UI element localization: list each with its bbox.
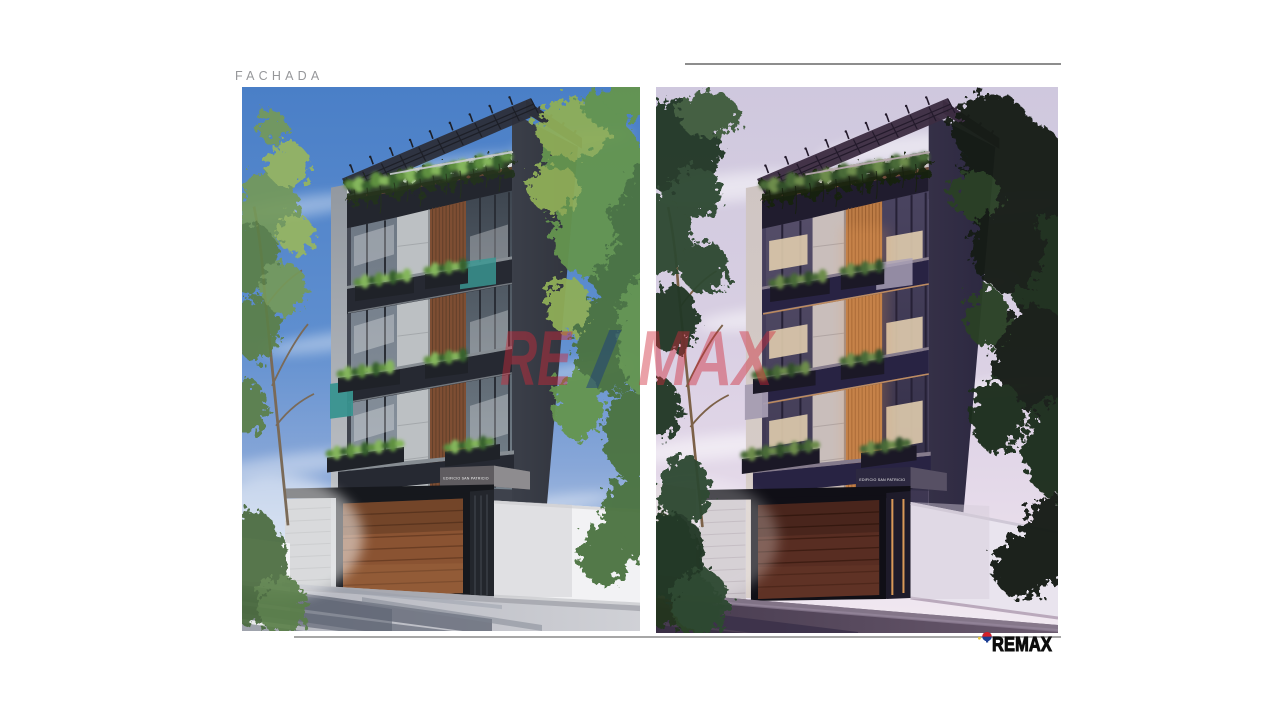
svg-text:EDIFICIO SAN PATRICIO: EDIFICIO SAN PATRICIO [859,478,905,482]
svg-text:EDIFICIO SAN PATRICIO: EDIFICIO SAN PATRICIO [443,477,489,481]
